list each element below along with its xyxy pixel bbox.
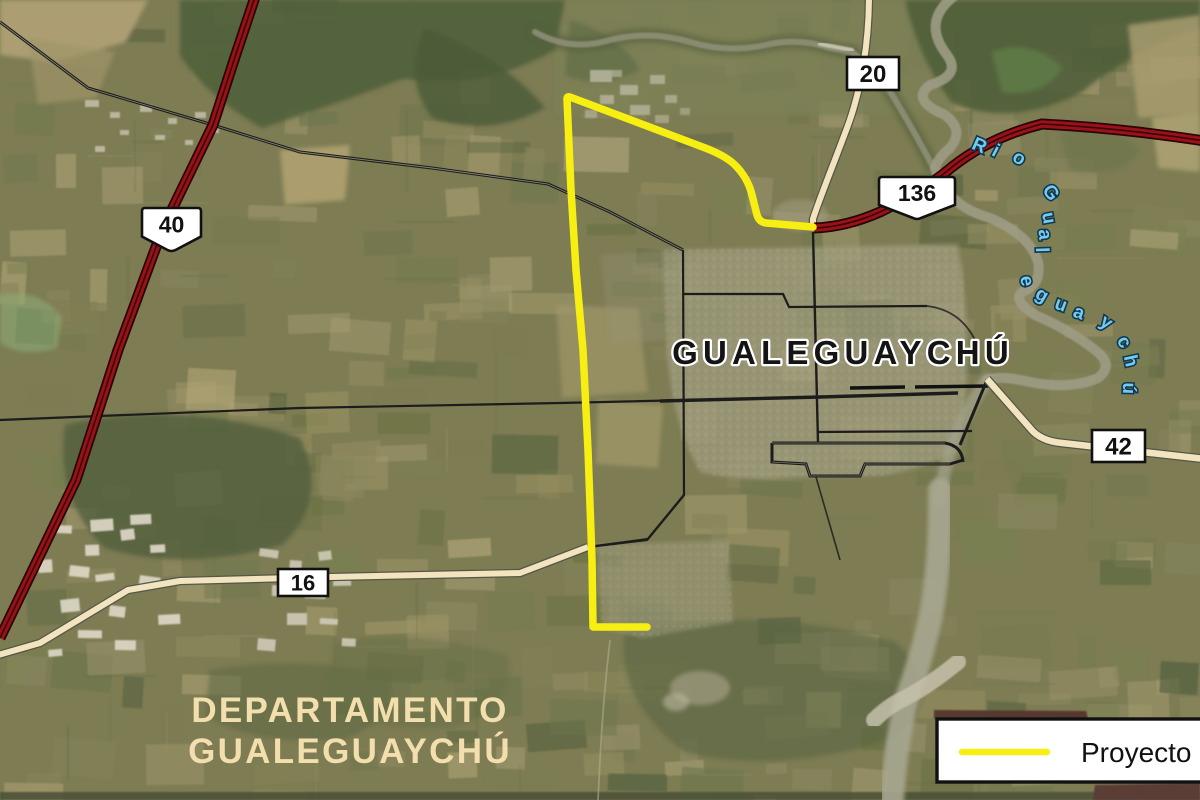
svg-text:Proyecto: Proyecto <box>1081 737 1192 768</box>
svg-text:GUALEGUAYCHÚ: GUALEGUAYCHÚ <box>188 731 512 771</box>
svg-text:16: 16 <box>291 570 315 595</box>
svg-text:l: l <box>1031 247 1052 253</box>
svg-text:42: 42 <box>1105 434 1132 461</box>
svg-text:136: 136 <box>898 180 936 206</box>
svg-text:20: 20 <box>860 61 887 88</box>
svg-text:ú: ú <box>1118 382 1139 394</box>
svg-text:DEPARTAMENTO: DEPARTAMENTO <box>191 691 508 730</box>
svg-text:GUALEGUAYCHÚ: GUALEGUAYCHÚ <box>672 334 1014 371</box>
svg-text:40: 40 <box>159 211 185 237</box>
